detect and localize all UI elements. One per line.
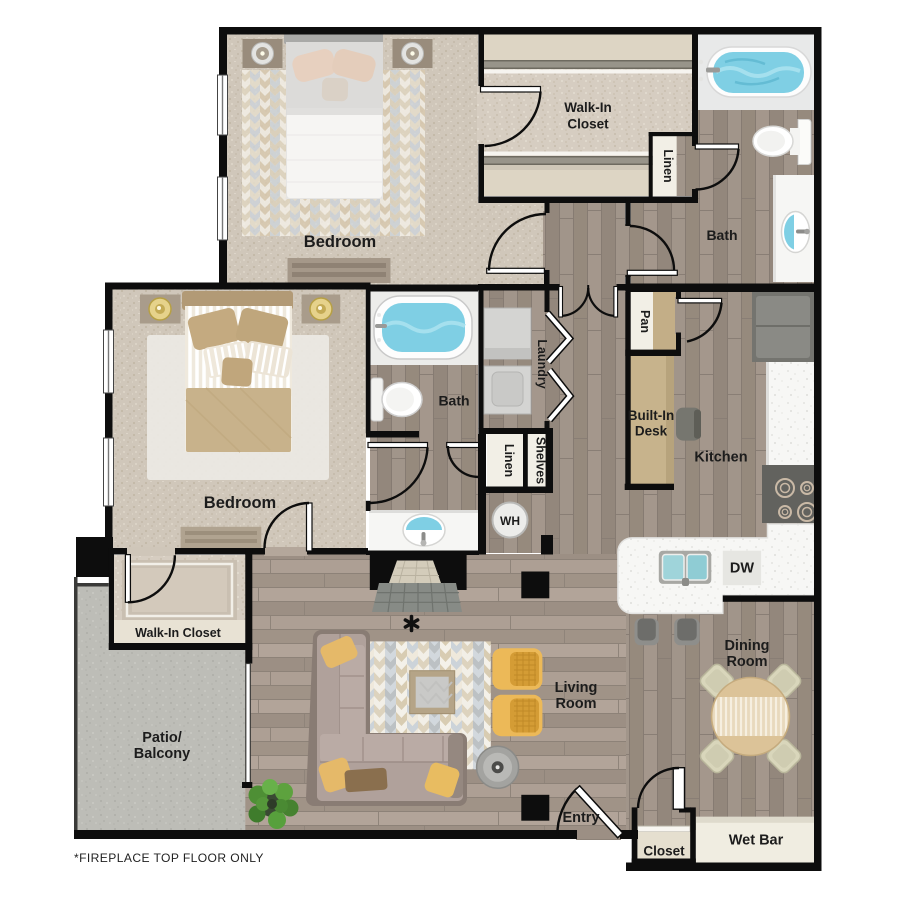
svg-text:Entry: Entry — [562, 810, 599, 826]
svg-text:Laundry: Laundry — [535, 339, 549, 388]
svg-text:Shelves: Shelves — [534, 437, 548, 484]
svg-text:Closet: Closet — [643, 844, 685, 859]
svg-text:Bedroom: Bedroom — [204, 494, 276, 512]
svg-text:Balcony: Balcony — [134, 746, 190, 762]
svg-text:Room: Room — [726, 654, 767, 670]
svg-text:Desk: Desk — [635, 424, 668, 439]
svg-text:Bath: Bath — [438, 393, 469, 409]
svg-text:*FIREPLACE TOP FLOOR ONLY: *FIREPLACE TOP FLOOR ONLY — [74, 851, 264, 865]
svg-text:WH: WH — [500, 514, 520, 528]
svg-text:Wet Bar: Wet Bar — [729, 833, 784, 849]
svg-text:Linen: Linen — [661, 149, 675, 182]
svg-text:Walk-In Closet: Walk-In Closet — [135, 626, 221, 640]
svg-text:Dining: Dining — [724, 638, 769, 654]
svg-text:Living: Living — [555, 680, 598, 696]
svg-text:DW: DW — [730, 561, 754, 577]
svg-text:Bedroom: Bedroom — [304, 233, 376, 251]
svg-text:Walk-In: Walk-In — [564, 100, 612, 115]
svg-text:Closet: Closet — [567, 117, 609, 132]
svg-text:Patio/: Patio/ — [142, 730, 181, 746]
svg-text:Room: Room — [555, 696, 596, 712]
svg-text:Linen: Linen — [502, 444, 516, 477]
svg-text:Built-In: Built-In — [628, 408, 675, 423]
svg-text:Pan: Pan — [638, 310, 652, 333]
svg-text:Kitchen: Kitchen — [694, 450, 747, 466]
svg-text:Bath: Bath — [706, 227, 737, 243]
